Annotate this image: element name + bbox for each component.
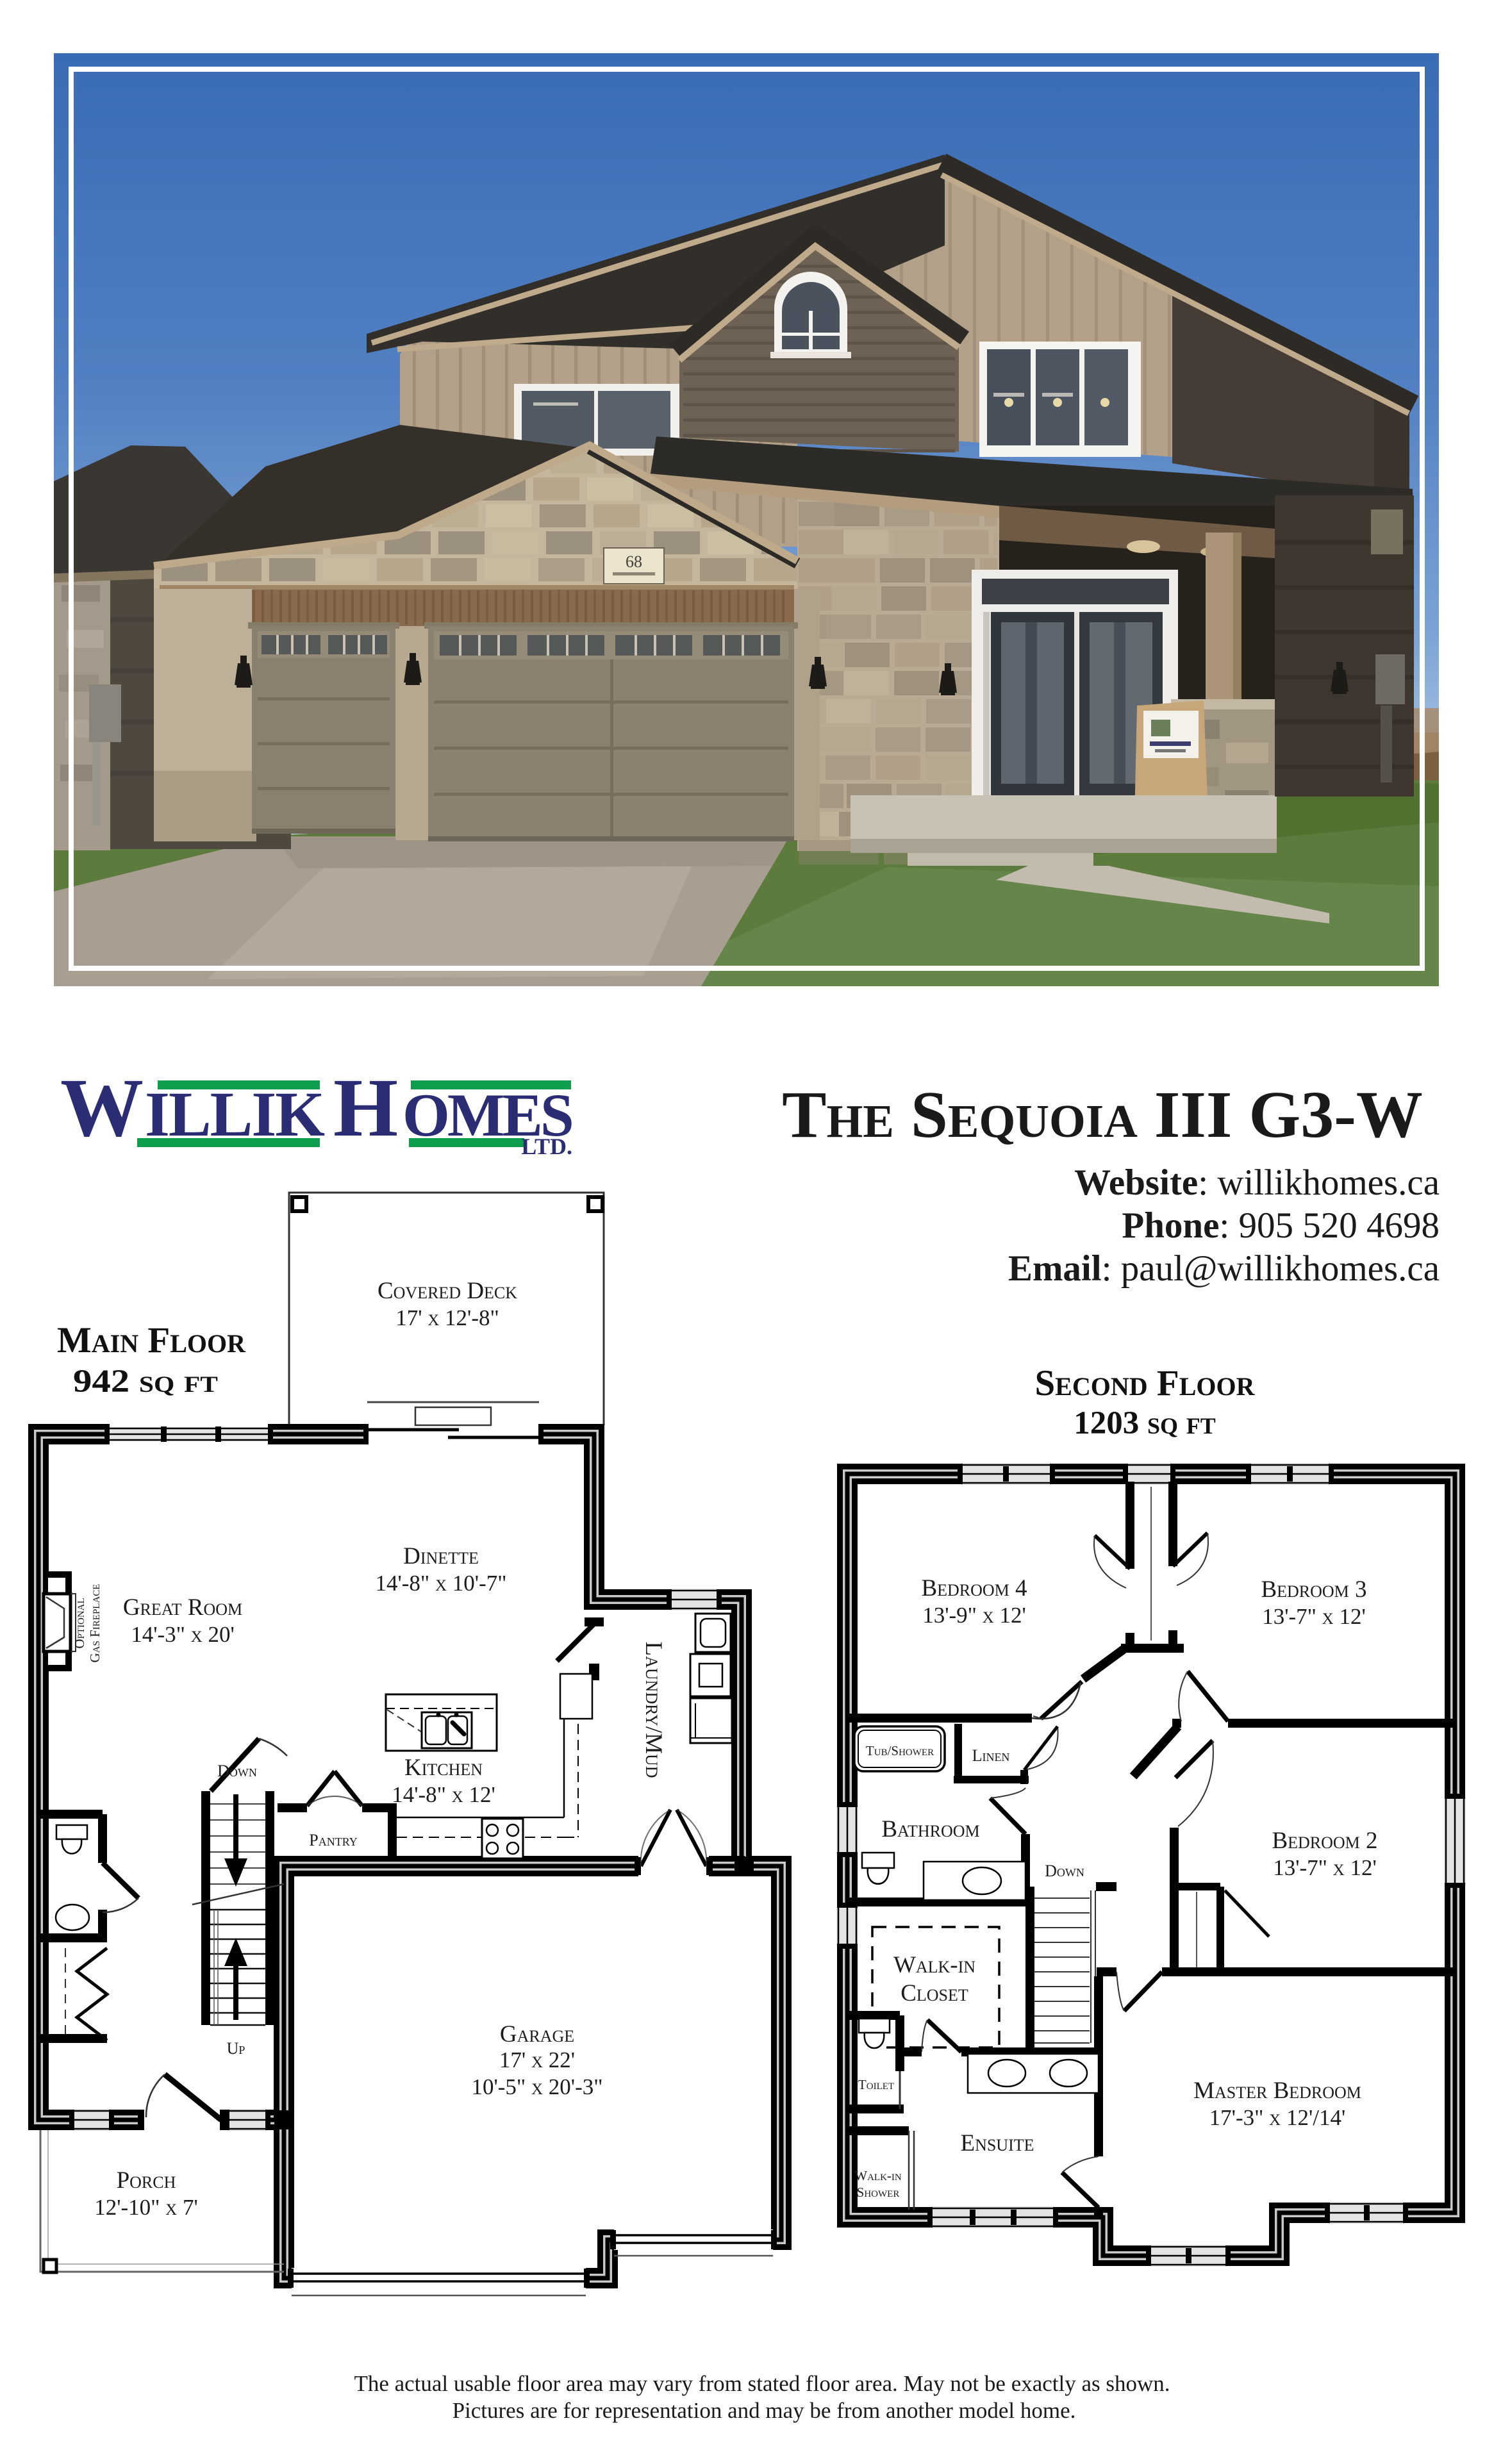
svg-text:14'-8" x 12': 14'-8" x 12' [392, 1782, 495, 1807]
svg-text:10'-5" x 20'-3": 10'-5" x 20'-3" [471, 2074, 602, 2099]
svg-text:14'-3" x 20': 14'-3" x 20' [131, 1622, 235, 1647]
svg-text:W: W [60, 1062, 144, 1154]
svg-text:12'-10" x 7': 12'-10" x 7' [94, 2195, 198, 2220]
svg-text:13'-7" x 12': 13'-7" x 12' [1262, 1604, 1366, 1629]
svg-text:14'-8" x 10'-7": 14'-8" x 10'-7" [375, 1571, 506, 1596]
svg-text:Closet: Closet [901, 1980, 968, 2006]
svg-text:Porch: Porch [117, 2167, 176, 2194]
svg-text:Ensuite: Ensuite [960, 2130, 1034, 2156]
svg-text:Shower: Shower [857, 2185, 900, 2200]
svg-text:Gas Fireplace: Gas Fireplace [87, 1584, 103, 1663]
svg-text:H: H [333, 1062, 398, 1154]
svg-text:Second Floor: Second Floor [1034, 1363, 1255, 1403]
svg-text:942 sq ft: 942 sq ft [73, 1364, 218, 1400]
svg-text:Tub/Shower: Tub/Shower [866, 1743, 934, 1758]
svg-text:Pantry: Pantry [309, 1831, 357, 1849]
svg-text:Email: paul@willikhomes.ca: Email: paul@willikhomes.ca [1008, 1248, 1440, 1289]
svg-text:Kitchen: Kitchen [404, 1755, 483, 1781]
svg-text:Laundry/Mud: Laundry/Mud [640, 1641, 667, 1778]
svg-text:Master Bedroom: Master Bedroom [1193, 2078, 1361, 2104]
svg-text:Bedroom 3: Bedroom 3 [1261, 1576, 1366, 1603]
svg-text:Walk-in: Walk-in [893, 1952, 975, 1978]
svg-text:13'-7" x 12': 13'-7" x 12' [1273, 1855, 1377, 1880]
svg-text:Bathroom: Bathroom [881, 1816, 979, 1842]
svg-text:Bedroom 4: Bedroom 4 [921, 1575, 1027, 1601]
svg-text:Toilet: Toilet [858, 2077, 894, 2092]
svg-text:Garage: Garage [500, 2021, 574, 2047]
svg-text:1203 sq ft: 1203 sq ft [1074, 1405, 1216, 1441]
svg-text:Covered Deck: Covered Deck [378, 1278, 517, 1304]
svg-text:68: 68 [626, 552, 642, 571]
svg-text:Great Room: Great Room [123, 1594, 242, 1621]
svg-text:Up: Up [227, 2039, 245, 2058]
svg-text:Optional: Optional [72, 1598, 87, 1648]
svg-text:Dinette: Dinette [403, 1543, 479, 1569]
svg-text:Bedroom 2: Bedroom 2 [1272, 1828, 1377, 1854]
svg-text:Phone: 905 520 4698: Phone: 905 520 4698 [1122, 1205, 1440, 1246]
svg-text:Down: Down [217, 1762, 257, 1780]
svg-text:The Sequoia III G3-W: The Sequoia III G3-W [782, 1078, 1423, 1152]
svg-text:LTD.: LTD. [521, 1134, 572, 1159]
svg-text:Walk-in: Walk-in [854, 2168, 902, 2183]
svg-text:Pictures are for representatio: Pictures are for representation and may … [452, 2398, 1076, 2423]
svg-text:Website: willikhomes.ca: Website: willikhomes.ca [1074, 1162, 1440, 1203]
svg-text:Down: Down [1045, 1862, 1084, 1880]
svg-text:Main Floor: Main Floor [57, 1320, 246, 1360]
svg-text:17' x 12'-8": 17' x 12'-8" [395, 1305, 499, 1330]
svg-text:17' x 22': 17' x 22' [499, 2047, 575, 2072]
svg-text:17'-3" x 12'/14': 17'-3" x 12'/14' [1209, 2105, 1346, 2130]
svg-text:The actual usable floor area m: The actual usable floor area may vary fr… [354, 2371, 1170, 2396]
svg-text:13'-9" x 12': 13'-9" x 12' [922, 1603, 1026, 1628]
svg-text:Linen: Linen [972, 1746, 1010, 1765]
